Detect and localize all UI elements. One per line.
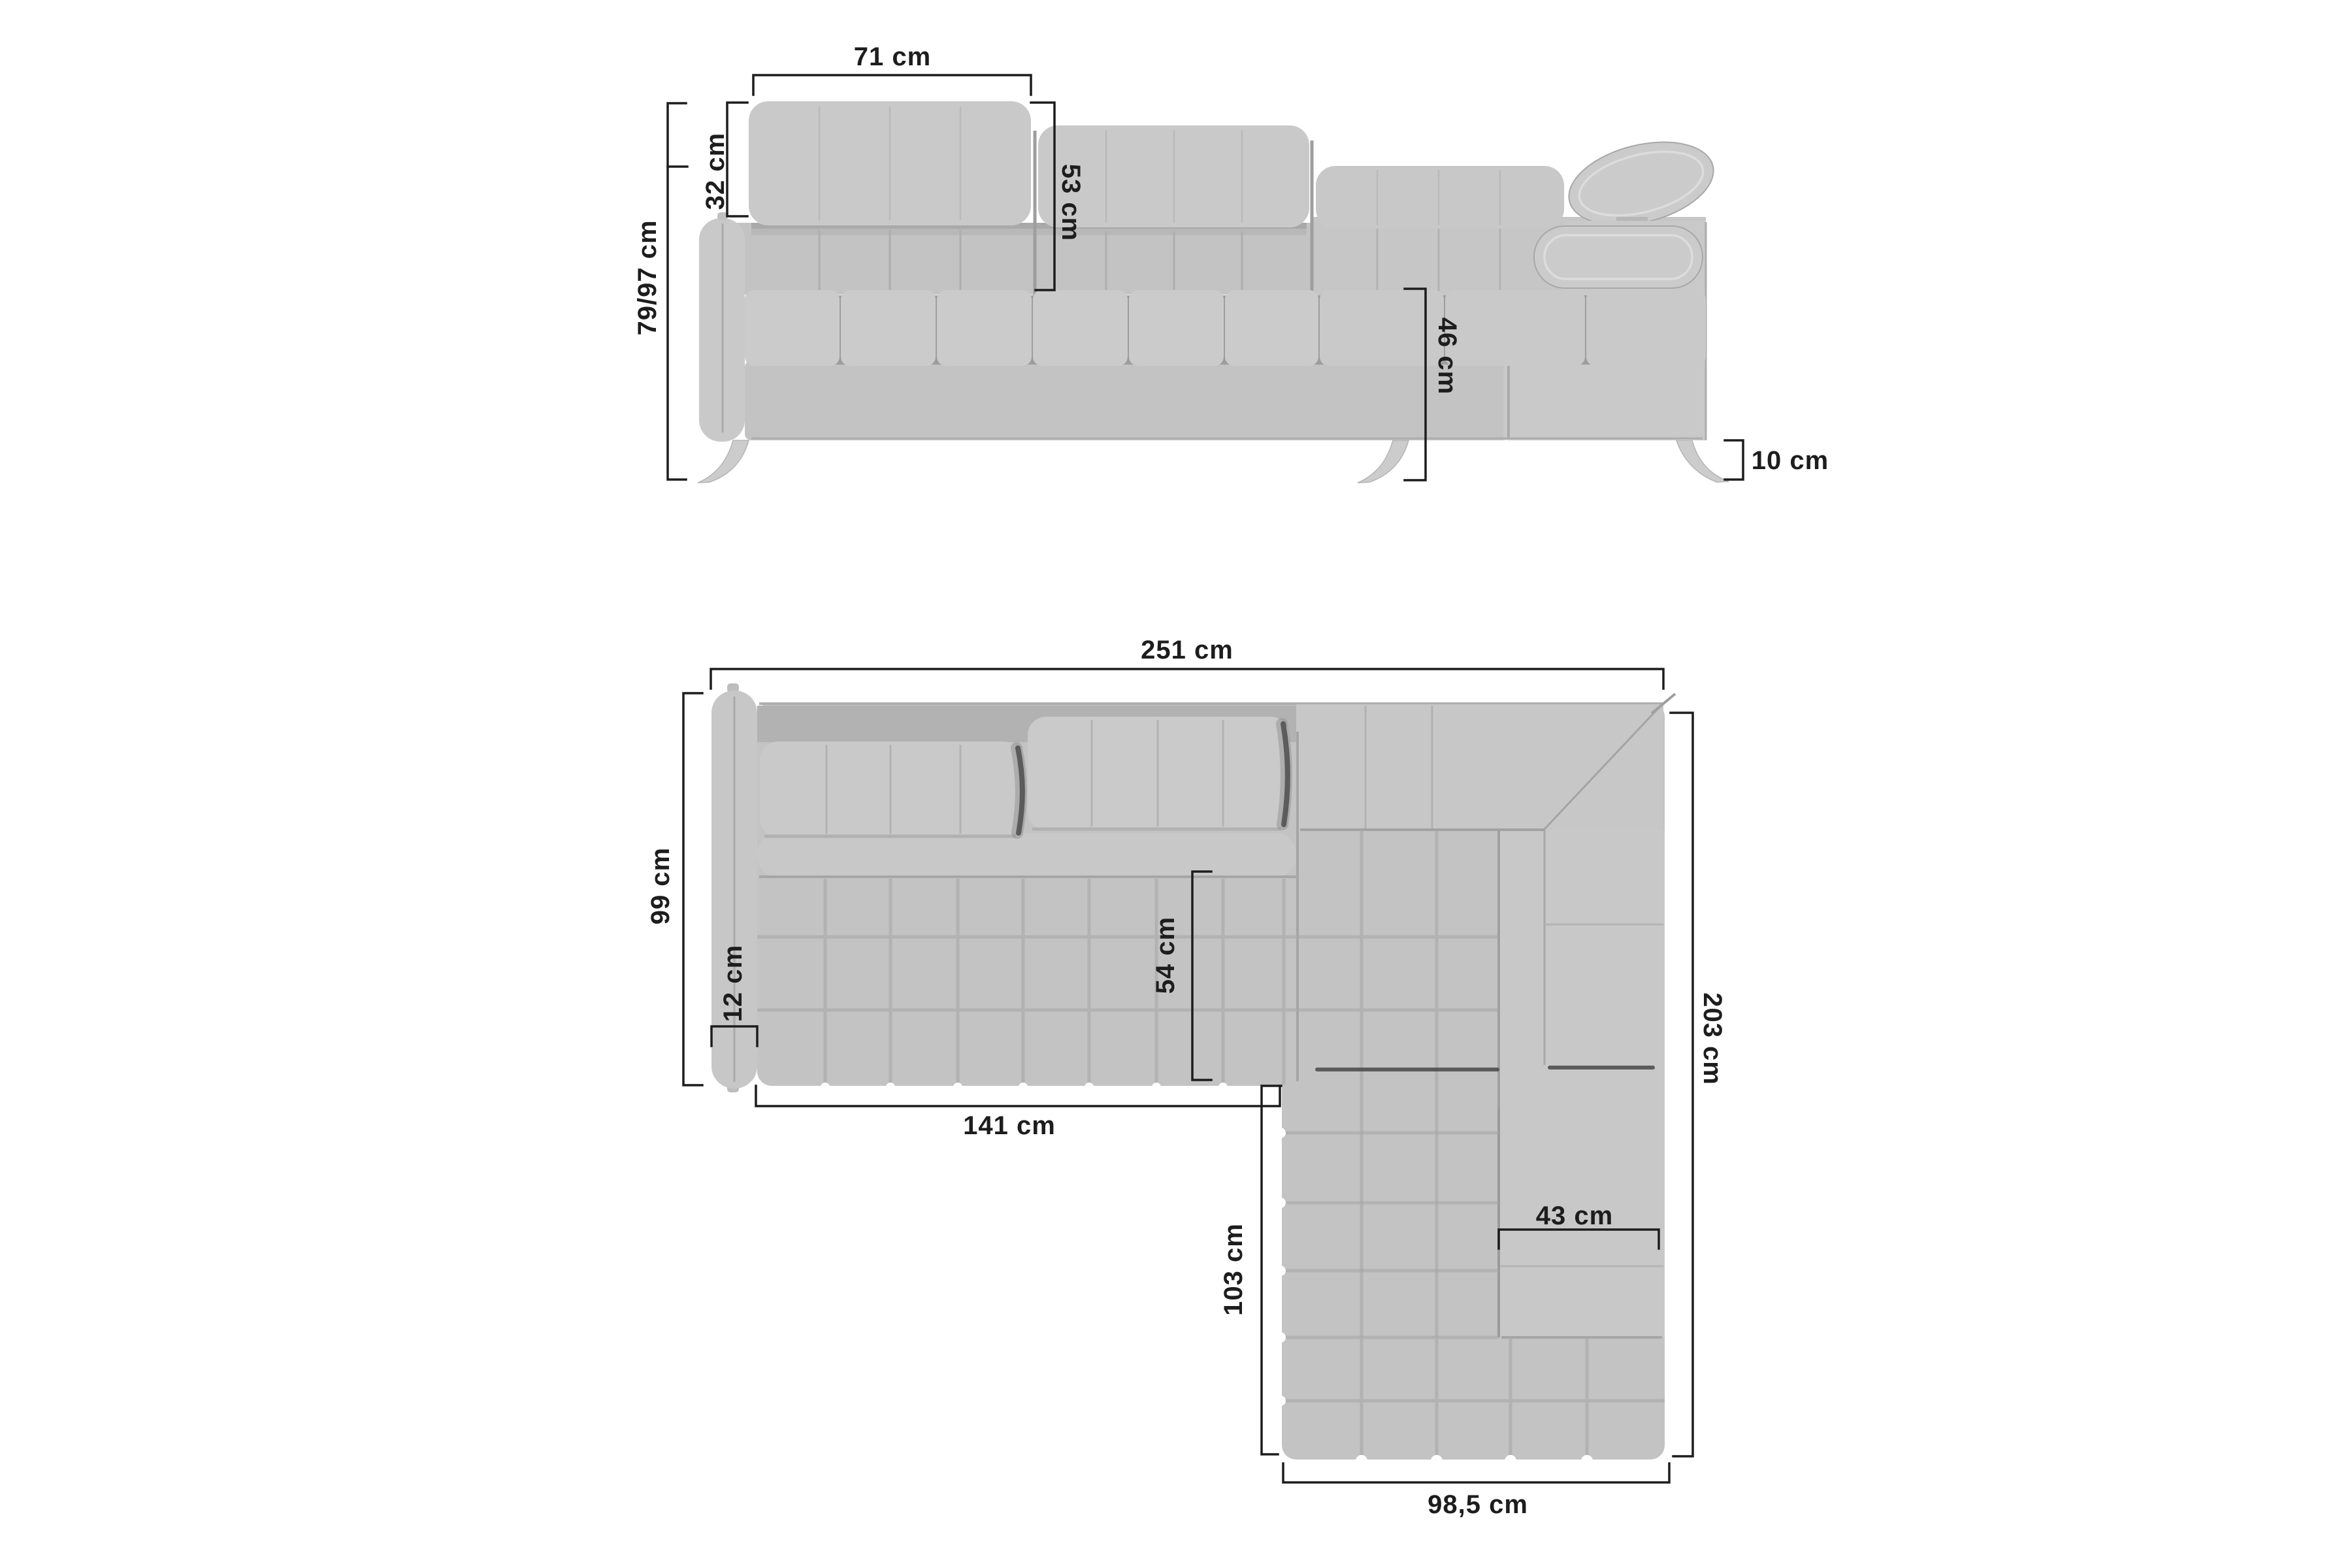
- svg-text:103 cm: 103 cm: [1219, 1223, 1248, 1316]
- svg-text:203 cm: 203 cm: [1698, 992, 1727, 1085]
- svg-text:71 cm: 71 cm: [854, 42, 931, 71]
- svg-text:10 cm: 10 cm: [1752, 446, 1829, 475]
- svg-text:54 cm: 54 cm: [1151, 917, 1180, 994]
- svg-text:12 cm: 12 cm: [719, 945, 747, 1022]
- svg-text:53 cm: 53 cm: [1056, 164, 1085, 241]
- svg-text:43 cm: 43 cm: [1536, 1201, 1613, 1230]
- svg-text:141 cm: 141 cm: [963, 1111, 1056, 1140]
- svg-text:251 cm: 251 cm: [1141, 636, 1233, 664]
- svg-text:46 cm: 46 cm: [1433, 318, 1462, 395]
- svg-text:98,5 cm: 98,5 cm: [1428, 1490, 1528, 1519]
- svg-text:79/97 cm: 79/97 cm: [633, 220, 662, 335]
- svg-text:32 cm: 32 cm: [701, 133, 730, 210]
- svg-text:99 cm: 99 cm: [646, 847, 675, 924]
